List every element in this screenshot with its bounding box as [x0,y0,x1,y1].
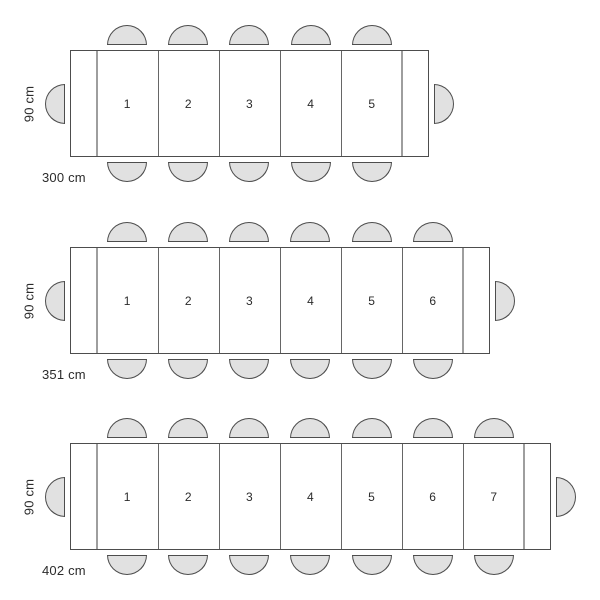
seat-number: 6 [429,294,436,308]
chair-bottom-7 [474,555,514,575]
chair-bottom-4 [290,555,330,575]
chair-bottom-5 [352,162,392,182]
seat-number: 3 [246,294,253,308]
chair-bottom-4 [291,162,331,182]
chair-top-5 [352,418,392,438]
chair-top-7 [474,418,514,438]
segment-divider [219,248,220,353]
chair-bottom-3 [229,359,269,379]
seat-number: 3 [246,97,253,111]
chair-bottom-1 [107,359,147,379]
chair-top-6 [413,222,453,242]
segment-divider [158,444,159,549]
seat-number: 5 [368,294,375,308]
seat-number: 4 [307,294,314,308]
table-leaf-divider-right [523,444,525,549]
table-length-label: 402 cm [42,563,86,578]
chair-top-4 [290,418,330,438]
seat-number: 2 [185,490,192,504]
seat-number: 3 [246,490,253,504]
chair-head-right [556,477,576,517]
table-depth-label: 90 cm [22,85,37,121]
chair-bottom-2 [168,555,208,575]
chair-head-left [45,84,65,124]
segment-divider [341,51,342,156]
table-length-label: 300 cm [42,170,86,185]
table-leaf-divider-right [462,248,464,353]
table-depth-label: 90 cm [22,282,37,318]
seat-number: 1 [124,490,131,504]
chair-top-2 [168,418,208,438]
chair-top-3 [229,222,269,242]
seat-number: 4 [307,490,314,504]
segment-divider [341,248,342,353]
table-leaf-divider-left [96,444,98,549]
chair-bottom-4 [290,359,330,379]
chair-top-2 [168,25,208,45]
chair-bottom-2 [168,162,208,182]
seat-number: 2 [185,97,192,111]
segment-divider [341,444,342,549]
chair-bottom-1 [107,555,147,575]
chair-top-5 [352,25,392,45]
seating-capacity-diagrams: 12345300 cm90 cm123456351 cm90 cm1234567… [0,0,600,600]
chair-bottom-6 [413,359,453,379]
seat-number: 1 [124,294,131,308]
chair-head-right [495,281,515,321]
chair-bottom-5 [352,555,392,575]
segment-divider [463,444,464,549]
chair-bottom-6 [413,555,453,575]
segment-divider [280,248,281,353]
segment-divider [219,444,220,549]
table-length-label: 351 cm [42,367,86,382]
chair-head-right [434,84,454,124]
chair-bottom-3 [229,555,269,575]
chair-top-4 [290,222,330,242]
chair-bottom-5 [352,359,392,379]
seat-number: 4 [307,97,314,111]
table-leaf-divider-right [401,51,403,156]
table-depth-label: 90 cm [22,478,37,514]
seat-number: 2 [185,294,192,308]
table-leaf-divider-left [96,248,98,353]
chair-top-3 [229,25,269,45]
segment-divider [402,248,403,353]
chair-top-1 [107,418,147,438]
chair-bottom-3 [229,162,269,182]
seat-number: 7 [490,490,497,504]
segment-divider [280,444,281,549]
seat-number: 6 [429,490,436,504]
chair-top-1 [107,222,147,242]
chair-head-left [45,281,65,321]
chair-bottom-1 [107,162,147,182]
seat-number: 5 [368,97,375,111]
chair-top-4 [291,25,331,45]
table-leaf-divider-left [96,51,98,156]
chair-top-5 [352,222,392,242]
segment-divider [280,51,281,156]
chair-top-6 [413,418,453,438]
seat-number: 5 [368,490,375,504]
segment-divider [402,444,403,549]
segment-divider [158,51,159,156]
chair-head-left [45,477,65,517]
segment-divider [158,248,159,353]
chair-bottom-2 [168,359,208,379]
chair-top-2 [168,222,208,242]
seat-number: 1 [124,97,131,111]
chair-top-1 [107,25,147,45]
chair-top-3 [229,418,269,438]
segment-divider [219,51,220,156]
